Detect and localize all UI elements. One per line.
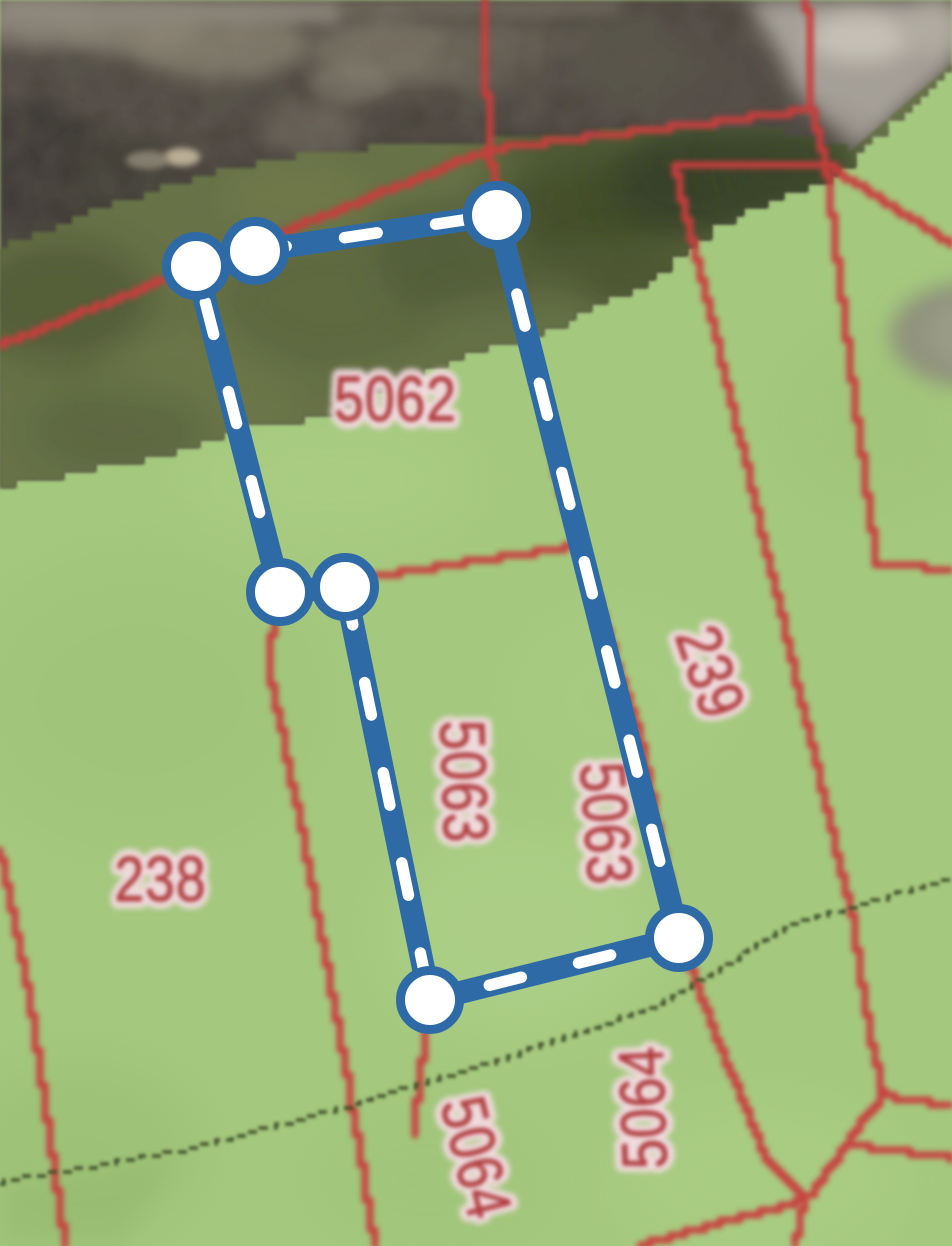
svg-text:5062: 5062 — [334, 362, 457, 435]
svg-text:238: 238 — [114, 842, 206, 915]
svg-text:5064: 5064 — [604, 1045, 681, 1170]
svg-text:5063: 5063 — [426, 719, 503, 844]
